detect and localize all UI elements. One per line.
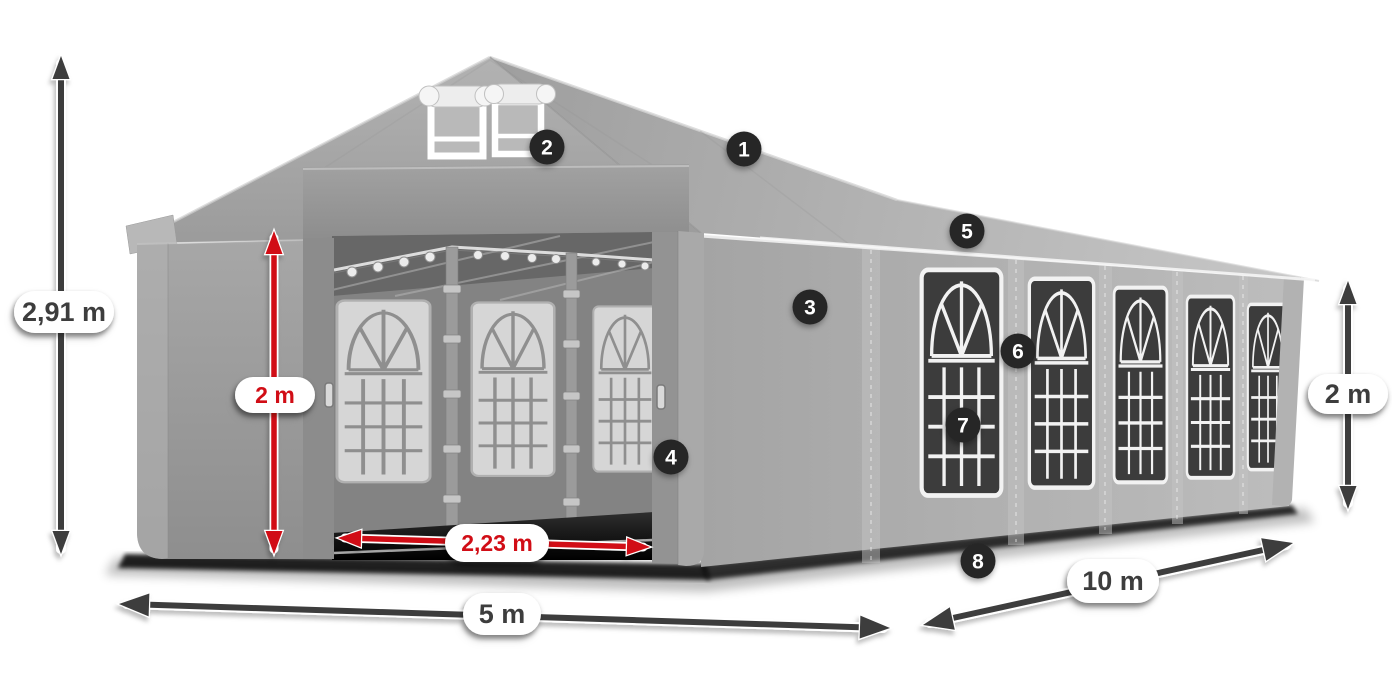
hotspot-badge-2[interactable]: 2 [530,130,565,165]
front-right-corner-post [678,231,704,566]
front-left-corner-post [137,243,168,559]
dimension-label: 2 m [1308,374,1388,414]
diagram-canvas: 2,91 m 2 m 2,23 m [0,0,1400,700]
interior-window [472,302,555,475]
svg-text:6: 6 [1012,341,1024,364]
door-header [303,164,689,241]
vent-roll-cap [537,85,556,104]
door-handle-left [325,383,333,407]
dimension-label: 10 m [1067,559,1159,603]
arrow-head-icon [921,607,955,636]
arrow-head-icon [860,616,891,640]
interior-window [337,301,430,483]
side-window [922,270,1002,496]
interior-window [593,306,656,471]
arrow-head-icon [1340,486,1357,509]
door-interior [332,232,657,560]
vent-roll-cap [419,86,439,106]
door-header-band [303,164,689,241]
tent [126,57,1319,567]
hotspot-badge-6[interactable]: 6 [1001,334,1036,369]
arrow-head-icon [119,593,150,617]
tent-dimension-diagram: 2,91 m 2 m 2,23 m [0,0,1400,700]
side-window [1187,297,1234,478]
dimension-label: 5 m [463,593,541,635]
roof-vent-left [419,86,495,156]
hotspot-badge-3[interactable]: 3 [793,290,828,325]
dimension-value: 2 m [255,382,295,408]
arrow-head-icon [1340,281,1357,304]
arrow-head-icon [1261,532,1295,561]
svg-text:5: 5 [961,221,973,244]
dimension-label: 2,91 m [14,291,114,333]
dimension-value: 2 m [1325,379,1372,409]
dimension-label: 2,23 m [445,524,549,562]
hotspot-badge-7[interactable]: 7 [946,408,981,443]
vent-frame [431,104,483,156]
svg-text:7: 7 [957,415,969,438]
svg-text:3: 3 [804,297,816,320]
hotspot-badge-5[interactable]: 5 [950,214,985,249]
dimension-value: 2,23 m [461,530,533,556]
arrow-head-icon [53,531,70,554]
side-window [1029,279,1093,488]
dimension-wall-height: 2 m [1308,281,1388,509]
dimension-value: 10 m [1082,566,1144,596]
side-window [1114,288,1167,483]
svg-text:2: 2 [541,137,553,160]
svg-text:1: 1 [738,139,750,162]
svg-text:8: 8 [972,551,984,574]
door-handle-right [657,385,665,409]
hotspot-badge-8[interactable]: 8 [961,544,996,579]
svg-text:4: 4 [665,447,677,470]
vent-roll-cap [485,85,504,104]
dimension-value: 2,91 m [22,297,106,327]
hotspot-badge-1[interactable]: 1 [727,132,762,167]
dimension-value: 5 m [479,599,526,629]
dimension-front-width: 5 m [119,593,891,640]
hotspot-badge-4[interactable]: 4 [654,440,689,475]
dimension-total-height: 2,91 m [14,56,114,554]
dimension-label: 2 m [235,377,315,413]
door-leaf-right [652,232,680,563]
arrow-head-icon [53,56,70,79]
